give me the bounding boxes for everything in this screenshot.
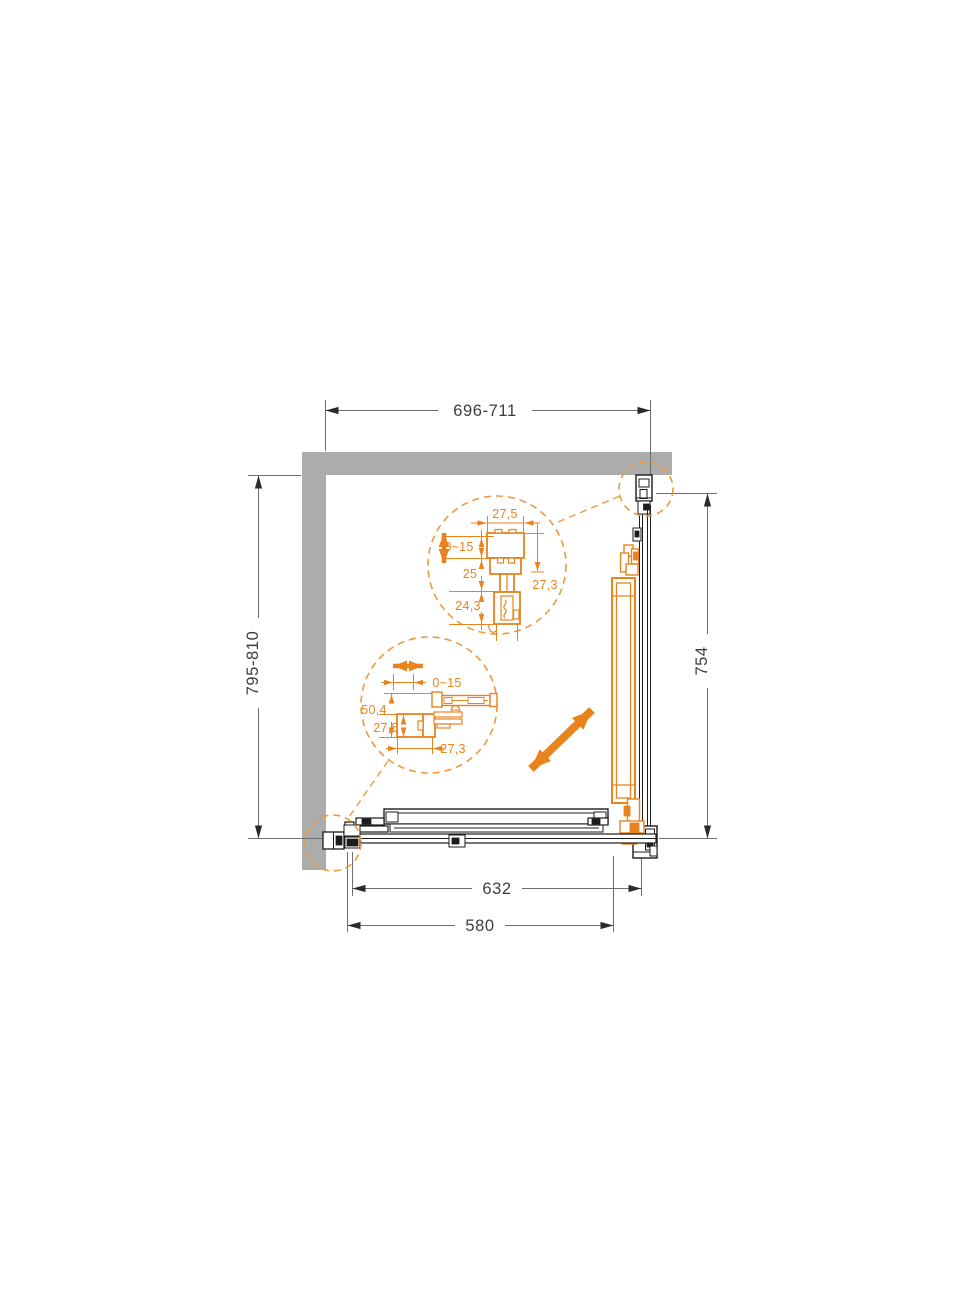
door-roller-top <box>621 545 639 575</box>
detail-top-profile-width-label: 27,5 <box>492 507 518 521</box>
wall-bracket-section <box>397 692 497 737</box>
detail-top-adjustment-label: 0~15 <box>444 540 473 554</box>
wall-profile-bottom-left <box>323 825 360 849</box>
rail-length-label: 632 <box>482 880 511 898</box>
left-depth-label: 795-810 <box>244 631 262 696</box>
drawing-canvas: 696-711 795-810 754 632 580 <box>0 0 975 1300</box>
detail-top-segment-lower-label: 24,3 <box>455 599 481 613</box>
detail-bottom-profile-width-label: 27,3 <box>440 742 466 756</box>
leader-line-top <box>558 496 620 522</box>
detail-bottom-adjustment-label: 0~15 <box>432 676 461 690</box>
detail-top-segment-mid-label: 25 <box>463 567 478 581</box>
slide-direction-arrow <box>531 710 592 769</box>
wall-top <box>302 452 672 475</box>
wall-left <box>302 475 326 870</box>
dimension-left-depth <box>248 476 346 839</box>
door-roller-right <box>588 818 608 825</box>
door-width-label: 580 <box>465 917 494 935</box>
leader-line-bottom <box>349 761 388 817</box>
detail-top-profile-depth-label: 27,3 <box>532 578 558 592</box>
sliding-door-vertical <box>612 578 635 803</box>
top-width-label: 696-711 <box>453 402 517 420</box>
detail-bottom-profile-height-label: 27,5 <box>373 721 399 735</box>
detail-bottom-overall-depth-label: 50,4 <box>361 703 387 717</box>
sliding-door-horizontal <box>384 809 608 832</box>
right-panel-width-label: 754 <box>693 646 711 675</box>
bottom-rail <box>338 834 656 847</box>
technical-drawing: 696-711 795-810 754 632 580 <box>0 0 975 1300</box>
